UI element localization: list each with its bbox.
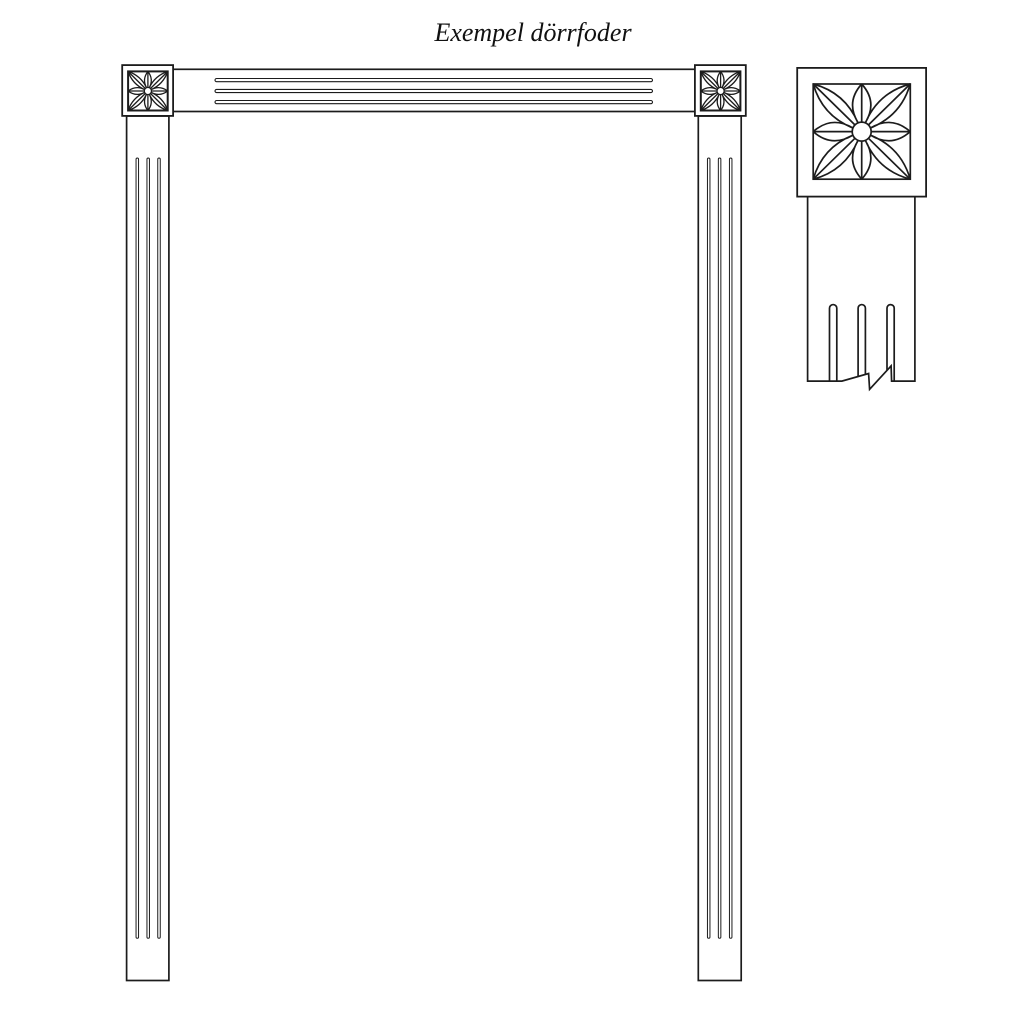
svg-text:Exempel dörrfoder: Exempel dörrfoder <box>433 18 632 47</box>
